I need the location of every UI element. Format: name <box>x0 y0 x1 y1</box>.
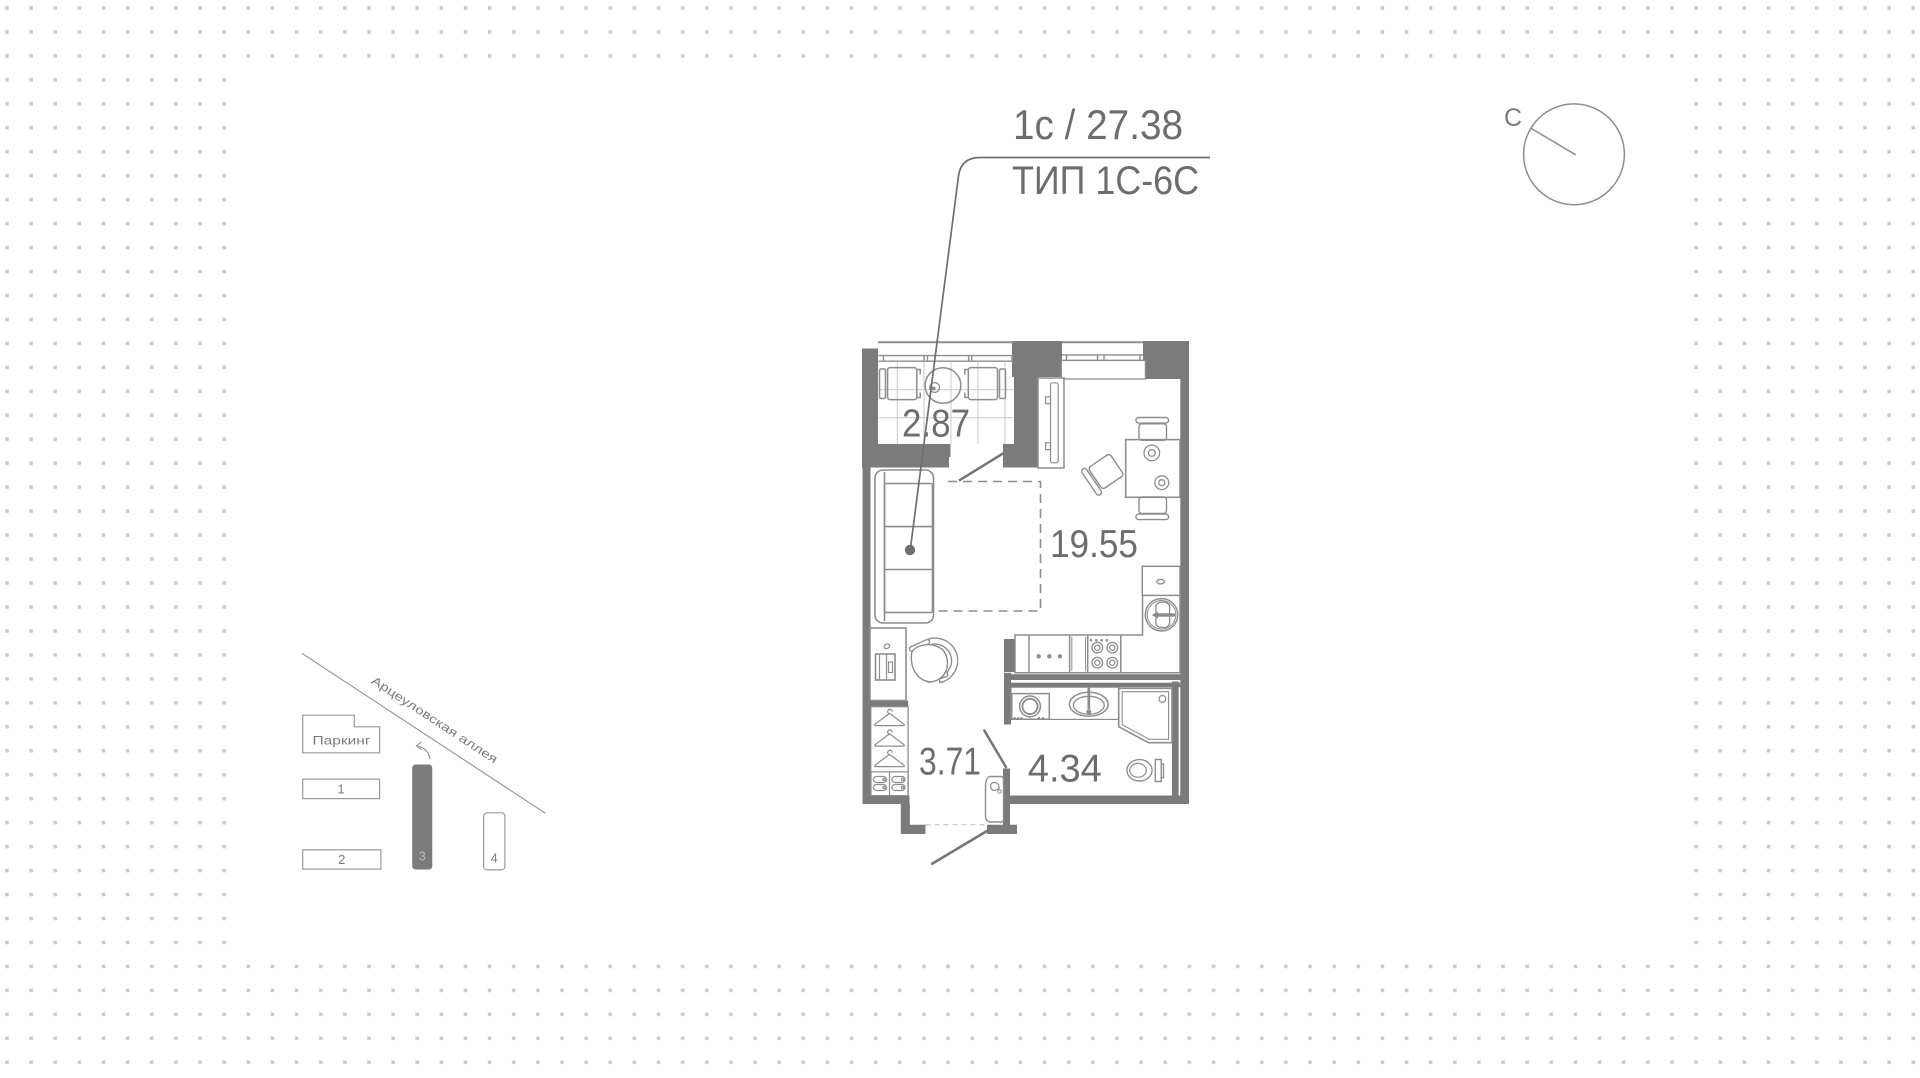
svg-text:4.34: 4.34 <box>1028 748 1102 791</box>
svg-text:4: 4 <box>491 852 498 866</box>
svg-text:ТИП 1С-6С: ТИП 1С-6С <box>1012 159 1199 203</box>
svg-text:1: 1 <box>337 782 344 797</box>
svg-text:Паркинг: Паркинг <box>313 734 372 748</box>
svg-text:2.87: 2.87 <box>902 403 970 446</box>
svg-text:1с / 27.38: 1с / 27.38 <box>1013 101 1183 148</box>
svg-text:2: 2 <box>338 852 345 867</box>
svg-text:3: 3 <box>419 850 426 864</box>
svg-text:3.71: 3.71 <box>919 741 981 784</box>
svg-text:С: С <box>1504 104 1522 132</box>
svg-text:19.55: 19.55 <box>1050 523 1138 566</box>
